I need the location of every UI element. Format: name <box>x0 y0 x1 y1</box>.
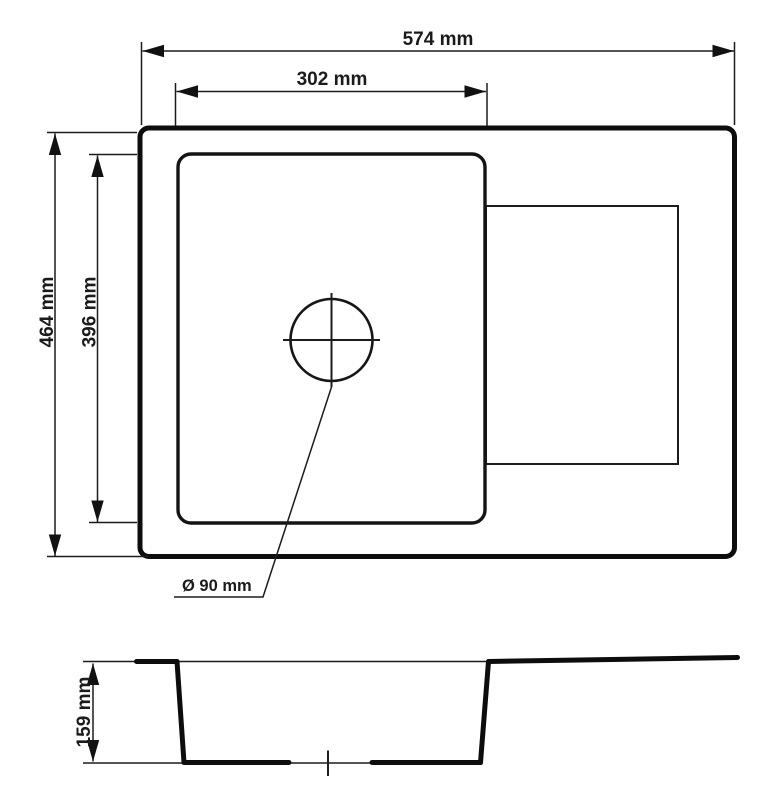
bowl-height-label: 159 mm <box>74 677 95 748</box>
dimension-bowl-width: 302 mm <box>176 69 488 126</box>
dimension-outer-width: 574 mm <box>142 29 735 125</box>
drawing-canvas: Ø 90 mm 574 mm 302 mm 464 mm <box>0 0 778 800</box>
arrowhead-top <box>91 156 103 178</box>
dimension-bowl-depth: 396 mm <box>80 155 138 523</box>
outer-width-label: 574 mm <box>403 29 474 50</box>
section-profile-right <box>372 658 738 763</box>
dimension-bowl-height: 159 mm <box>74 664 99 762</box>
arrowhead-top <box>49 134 61 156</box>
drain-leader-line <box>174 387 332 597</box>
arrowhead-bottom <box>91 501 103 523</box>
arrowhead-right <box>713 45 735 57</box>
arrowhead-right <box>465 85 487 97</box>
section-view <box>83 658 738 777</box>
bowl-width-label: 302 mm <box>297 69 368 90</box>
sink-technical-drawing: Ø 90 mm 574 mm 302 mm 464 mm <box>0 0 778 800</box>
bowl-depth-label: 396 mm <box>80 277 101 348</box>
arrowhead-bottom <box>49 535 61 557</box>
drain-diameter-label: Ø 90 mm <box>182 577 252 595</box>
arrowhead-left <box>177 85 199 97</box>
sink-outer-outline <box>140 128 735 557</box>
section-profile-left <box>137 662 290 763</box>
arrowhead-left <box>143 45 165 57</box>
top-view: Ø 90 mm <box>140 128 735 597</box>
outer-depth-label: 464 mm <box>37 277 58 348</box>
drainboard-outline <box>486 206 678 464</box>
